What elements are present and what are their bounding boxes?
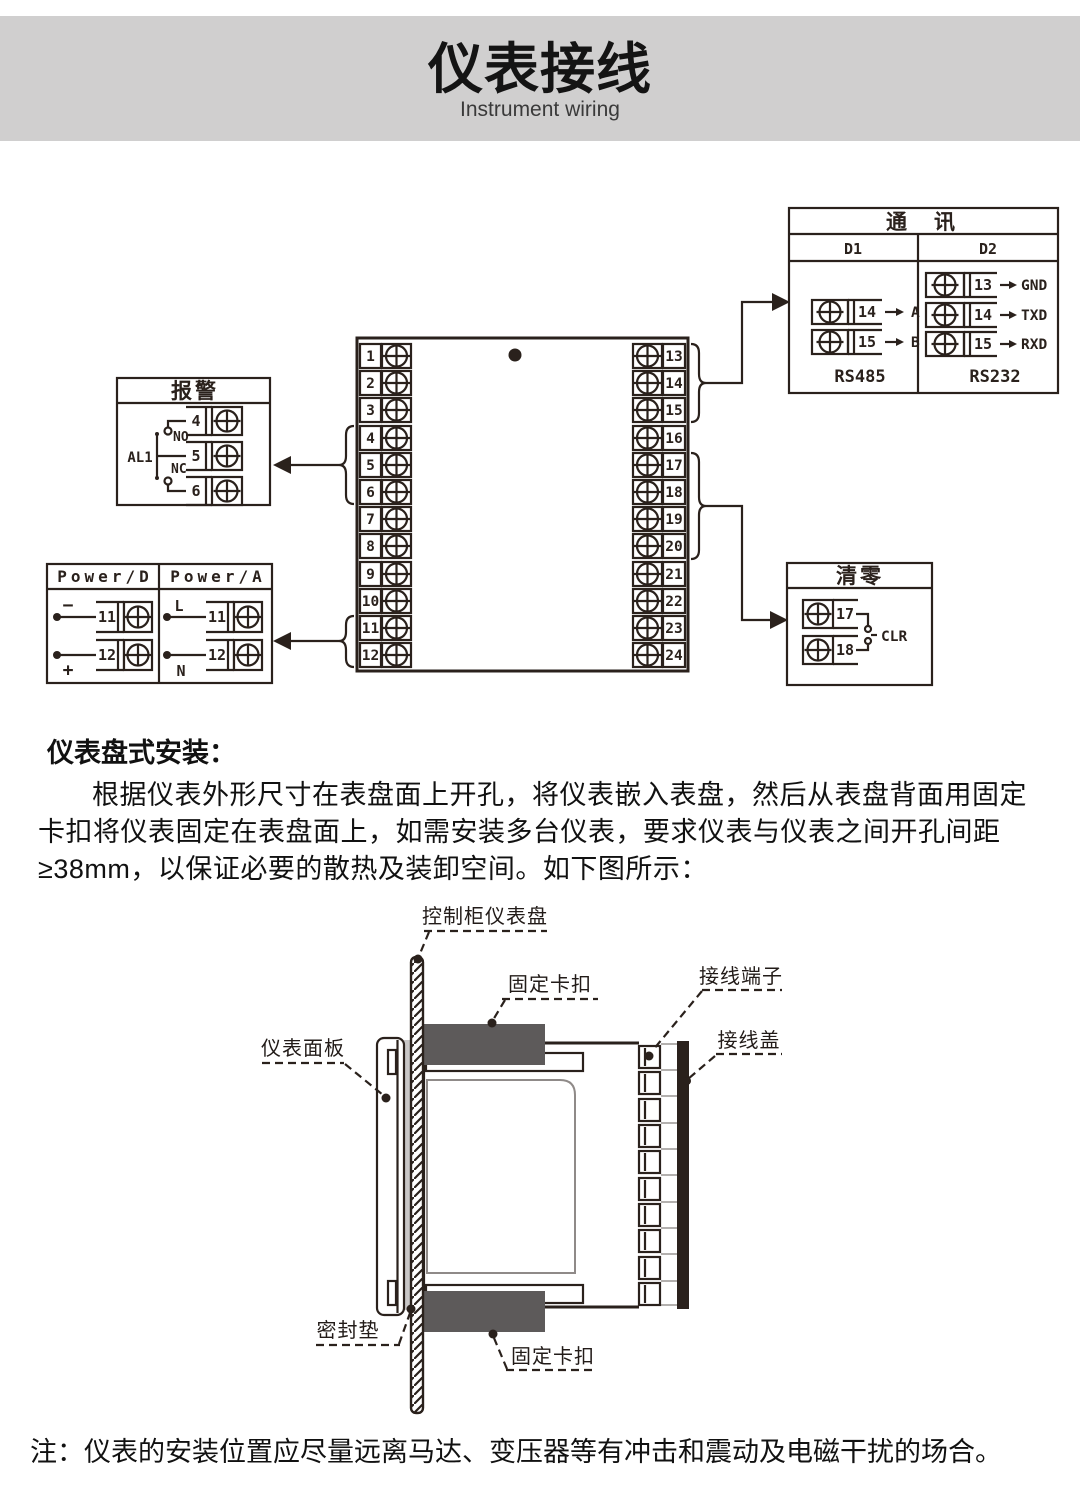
wiring-diagram: 113 214 315 416 517 618 719 820 921 1022… xyxy=(0,0,1080,740)
label-text: 固定卡扣 xyxy=(511,1345,595,1368)
signal-label: A xyxy=(911,305,920,321)
label-cover: 接线盖 xyxy=(683,1029,782,1085)
terminal-number: 14 xyxy=(974,306,992,324)
terminal-number: 3 xyxy=(366,403,375,419)
terminal-number: 9 xyxy=(366,567,375,583)
plus-sign: + xyxy=(63,660,74,681)
terminal-number: 16 xyxy=(665,431,682,447)
minus-sign: − xyxy=(63,595,74,616)
clr-label: CLR xyxy=(881,629,907,645)
terminal-number: 15 xyxy=(665,403,682,419)
install-diagram: 控制柜仪表盘 固定卡扣 接线端子 接线盖 仪表面板 xyxy=(0,880,1080,1440)
terminal-row: 113 xyxy=(360,344,685,368)
terminal-row: 719 xyxy=(360,507,685,531)
terminal-row: 820 xyxy=(360,534,685,558)
comm-d1-row: 14 A xyxy=(812,300,920,324)
alarm-box: 报警 4 5 6 NO NC AL1 xyxy=(117,378,270,505)
display-window xyxy=(427,1080,575,1273)
terminal-row: 1022 xyxy=(360,589,685,613)
clear-box: 清零 17 18 CLR xyxy=(787,563,932,685)
terminal-number: 17 xyxy=(665,458,682,474)
terminal-number: 7 xyxy=(366,512,375,528)
connection-wires xyxy=(273,293,790,667)
terminal-number: 15 xyxy=(974,335,992,353)
wire-to-comm xyxy=(706,302,772,383)
terminal-number: 5 xyxy=(366,458,375,474)
label-text: 控制柜仪表盘 xyxy=(422,905,548,928)
terminal-number: 12 xyxy=(98,646,116,664)
al1-label: AL1 xyxy=(127,450,152,466)
terminal-row: 921 xyxy=(360,562,685,586)
terminal-number: 17 xyxy=(836,605,854,623)
comm-col-d2: D2 xyxy=(979,240,997,258)
terminal-number: 1 xyxy=(366,349,375,365)
terminal-row: 315 xyxy=(360,398,685,422)
label-clip-bottom: 固定卡扣 xyxy=(489,1330,596,1371)
terminal-number: 21 xyxy=(665,567,683,583)
wire-to-clear xyxy=(706,506,770,620)
page: 仪表接线 Instrument wiring 113 214 315 416 5… xyxy=(0,0,1080,1505)
terminal-row: 1224 xyxy=(360,643,685,667)
power-box: Power/D Power/A − 11 + 12 L 11 N xyxy=(47,564,272,683)
front-bezel xyxy=(377,1038,404,1315)
label-text: 仪表面板 xyxy=(261,1037,345,1060)
terminal-number: 18 xyxy=(836,641,854,659)
arrowhead-clear xyxy=(770,611,788,629)
terminal-number: 11 xyxy=(362,621,380,637)
clear-title: 清零 xyxy=(836,564,884,588)
signal-label: B xyxy=(911,335,920,351)
terminal-row: 618 xyxy=(360,480,685,504)
terminal-row: 214 xyxy=(360,371,685,395)
label-panel: 控制柜仪表盘 xyxy=(414,905,549,964)
comm-d2-row: 14 TXD xyxy=(926,303,1047,327)
terminal-number: 19 xyxy=(665,512,682,528)
label-text: 密封垫 xyxy=(317,1319,380,1342)
label-text: 接线盖 xyxy=(718,1029,781,1052)
terminal-number: 14 xyxy=(858,303,876,321)
terminal-block: 113 214 315 416 517 618 719 820 921 1022… xyxy=(357,338,688,671)
terminal-number: 14 xyxy=(665,376,683,392)
neutral-n-label: N xyxy=(176,662,185,680)
signal-label: TXD xyxy=(1021,308,1047,324)
terminal-row: 1123 xyxy=(360,616,685,640)
comm-d2-row: 13 GND xyxy=(926,273,1047,297)
terminal-number: 13 xyxy=(974,276,992,294)
instrument-side-view xyxy=(377,957,689,1413)
power-a-title: Power/A xyxy=(170,567,265,586)
brace-terminals-11-12 xyxy=(339,616,354,667)
terminal-strip xyxy=(639,1044,677,1305)
comm-rs485-label: RS485 xyxy=(834,367,885,387)
mounting-panel xyxy=(411,957,423,1413)
terminal-number: 10 xyxy=(362,594,379,610)
nc-label: NC xyxy=(171,462,187,477)
terminal-number: 22 xyxy=(665,594,682,610)
terminal-number: 13 xyxy=(665,349,682,365)
arrowhead-power xyxy=(273,632,291,650)
terminal-number: 11 xyxy=(98,608,116,626)
terminal-number: 12 xyxy=(208,646,226,664)
terminal-number: 6 xyxy=(191,482,200,500)
install-paragraph: 根据仪表外形尺寸在表盘面上开孔，将仪表嵌入表盘，然后从表盘背面用固定卡扣将仪表固… xyxy=(38,777,1050,888)
comm-rs232-label: RS232 xyxy=(969,367,1020,387)
terminal-number: 4 xyxy=(366,431,375,447)
comm-col-d1: D1 xyxy=(844,240,862,258)
terminal-number: 20 xyxy=(665,539,682,555)
terminal-number: 12 xyxy=(362,648,379,664)
terminal-number: 2 xyxy=(366,376,375,392)
terminal-number: 15 xyxy=(858,333,876,351)
fixing-clip-bottom xyxy=(423,1291,545,1332)
brace-terminals-4-6 xyxy=(339,426,354,504)
label-front: 仪表面板 xyxy=(261,1037,391,1103)
arrowhead-comm xyxy=(772,293,790,311)
clr-switch-symbol xyxy=(856,614,877,650)
comm-d2-row: 15 RXD xyxy=(926,332,1047,356)
comm-d1-row: 15 B xyxy=(812,330,920,354)
label-text: 固定卡扣 xyxy=(508,973,592,996)
terminal-row: 416 xyxy=(360,426,685,450)
line-l-label: L xyxy=(174,597,183,615)
install-heading: 仪表盘式安装： xyxy=(47,731,236,770)
terminal-number: 23 xyxy=(665,621,682,637)
signal-label: RXD xyxy=(1021,337,1047,353)
footer-note: 注：仪表的安装位置应尽量远离马达、变压器等有冲击和震动及电磁干扰的场合。 xyxy=(30,1430,1060,1469)
no-label: NO xyxy=(173,430,189,445)
terminal-number: 8 xyxy=(366,539,375,555)
terminal-number: 11 xyxy=(208,608,226,626)
terminal-row: 517 xyxy=(360,453,685,477)
comm-box: 通 讯 D1 D2 14 A 15 B RS485 xyxy=(789,208,1058,393)
fixing-clip-top xyxy=(423,1024,545,1065)
orientation-dot xyxy=(509,349,522,362)
label-clip-top: 固定卡扣 xyxy=(488,973,599,1028)
signal-label: GND xyxy=(1021,278,1047,294)
terminal-number: 18 xyxy=(665,485,682,501)
terminal-number: 24 xyxy=(665,648,683,664)
power-d-title: Power/D xyxy=(57,567,152,586)
terminal-number: 6 xyxy=(366,485,375,501)
arrowhead-alarm xyxy=(273,456,291,474)
brace-terminals-17-20 xyxy=(691,453,706,559)
label-text: 接线端子 xyxy=(699,965,783,988)
alarm-title: 报警 xyxy=(171,379,219,403)
terminal-number: 5 xyxy=(191,447,200,465)
comm-title: 通 讯 xyxy=(886,211,958,234)
terminal-number: 4 xyxy=(191,412,200,430)
brace-terminals-13-15 xyxy=(691,344,706,422)
